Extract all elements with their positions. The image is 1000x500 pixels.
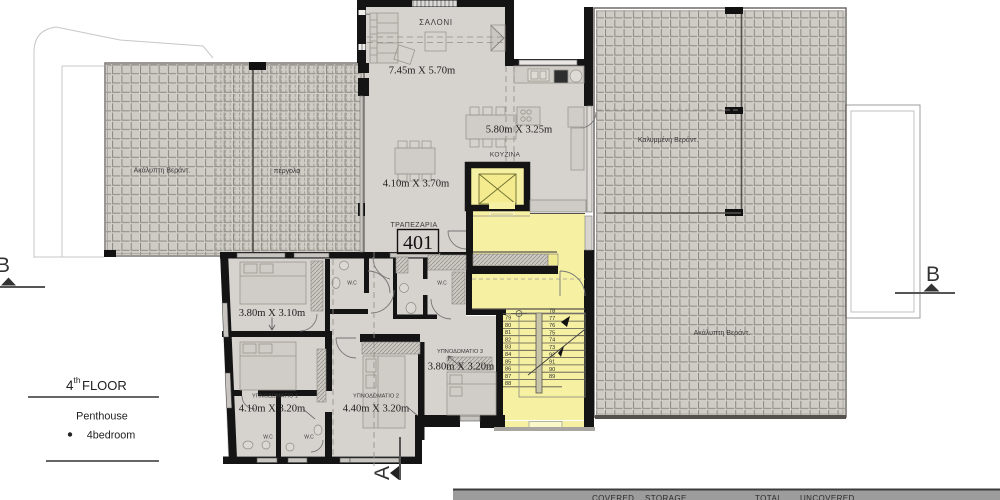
svg-text:B: B <box>926 263 940 286</box>
svg-text:ΤΡΑΠΕΖΑΡΙΑ: ΤΡΑΠΕΖΑΡΙΑ <box>390 222 437 229</box>
svg-text:76: 76 <box>549 323 555 329</box>
svg-text:74: 74 <box>549 338 555 344</box>
svg-text:TOTAL: TOTAL <box>755 494 782 500</box>
svg-text:82: 82 <box>505 337 511 343</box>
svg-text:85: 85 <box>505 359 511 365</box>
svg-text:Penthouse: Penthouse <box>76 411 128 423</box>
svg-text:83: 83 <box>505 345 511 351</box>
svg-text:STORAGE: STORAGE <box>645 494 687 500</box>
svg-text:84: 84 <box>505 352 511 358</box>
svg-text:89: 89 <box>549 374 555 380</box>
svg-text:A: A <box>371 466 394 480</box>
svg-text:3.80m X 3.10m: 3.80m X 3.10m <box>239 308 306 319</box>
svg-text:7.45m X 5.70m: 7.45m X 5.70m <box>389 66 456 77</box>
svg-text:Ακάλυπτη Βεράντ.: Ακάλυπτη Βεράντ. <box>134 167 191 175</box>
svg-text:401: 401 <box>403 232 433 254</box>
svg-text:75: 75 <box>549 330 555 336</box>
svg-text:ΥΠΝΟΔΩΜΑΤΙΟ 1: ΥΠΝΟΔΩΜΑΤΙΟ 1 <box>252 394 298 400</box>
svg-text:4.10m X 3.20m: 4.10m X 3.20m <box>239 404 306 415</box>
svg-text:UNCOVERED: UNCOVERED <box>800 494 855 500</box>
svg-text:4.10m X 3.70m: 4.10m X 3.70m <box>383 179 450 190</box>
svg-text:B: B <box>0 254 10 277</box>
svg-text:86: 86 <box>505 367 511 373</box>
svg-text:W.C: W.C <box>437 281 447 287</box>
svg-text:78: 78 <box>549 309 555 315</box>
svg-text:Καλυμμένη Βεράντ.: Καλυμμένη Βεράντ. <box>638 136 698 144</box>
svg-text:5.80m X 3.25m: 5.80m X 3.25m <box>486 125 553 136</box>
svg-text:KOYZINA: KOYZINA <box>490 152 521 159</box>
svg-text:90: 90 <box>549 367 555 373</box>
svg-text:ΣΑΛΟΝΙ: ΣΑΛΟΝΙ <box>419 18 453 27</box>
svg-text:91: 91 <box>549 360 555 366</box>
svg-text:th: th <box>74 375 81 385</box>
svg-text:81: 81 <box>505 330 511 336</box>
svg-text:W.C: W.C <box>347 281 357 287</box>
svg-text:COVERED: COVERED <box>592 494 634 500</box>
svg-text:79: 79 <box>505 316 511 322</box>
svg-text:77: 77 <box>549 316 555 322</box>
svg-text:FLOOR: FLOOR <box>82 378 127 393</box>
svg-text:73: 73 <box>549 345 555 351</box>
svg-text:4bedroom: 4bedroom <box>87 430 136 442</box>
svg-text:Ακάλυπτη Βεράντ.: Ακάλυπτη Βεράντ. <box>694 329 751 337</box>
svg-text:88: 88 <box>505 381 511 387</box>
svg-text:92: 92 <box>549 352 555 358</box>
svg-text:W.C: W.C <box>304 435 314 441</box>
svg-text:πέργολα: πέργολα <box>274 167 301 175</box>
svg-text:4.40m X 3.20m: 4.40m X 3.20m <box>343 404 410 415</box>
svg-text:87: 87 <box>505 374 511 380</box>
svg-text:ΥΠΝΟΔΩΜΑΤΙΟ 2: ΥΠΝΟΔΩΜΑΤΙΟ 2 <box>353 394 399 400</box>
svg-text:ΥΠΝΟΔΩΜΑΤΙΟ 3: ΥΠΝΟΔΩΜΑΤΙΟ 3 <box>437 349 483 355</box>
svg-text:80: 80 <box>505 323 511 329</box>
svg-text:W.C: W.C <box>263 435 273 441</box>
